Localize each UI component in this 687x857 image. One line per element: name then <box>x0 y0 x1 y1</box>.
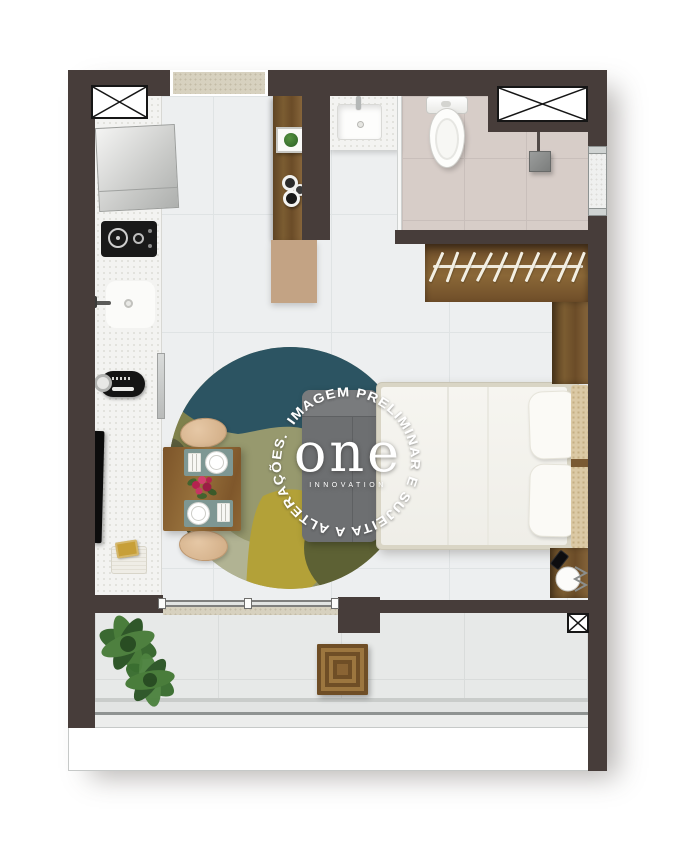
window-cap-bottom <box>589 208 606 215</box>
toilet-seat <box>435 118 459 160</box>
cooktop-knob-2 <box>148 244 152 248</box>
microwave-cap <box>94 374 112 392</box>
bathroom-faucet <box>356 96 361 109</box>
hanger-icon <box>429 252 445 282</box>
burner-small <box>133 233 144 244</box>
watermark-logo: one INNOVATION <box>284 426 412 489</box>
balcony-outer-ledge <box>68 727 607 771</box>
logo-one: one <box>284 426 412 480</box>
glass-partition <box>397 96 402 230</box>
headboard-divider <box>571 459 589 467</box>
fridge-door-seam <box>99 187 177 192</box>
folded-towel <box>115 539 139 558</box>
wire-side-table <box>553 562 589 596</box>
napkin-bottom <box>217 503 230 522</box>
hanger-icon <box>557 252 573 282</box>
plate-top <box>205 451 228 474</box>
hanger-icon <box>571 252 586 283</box>
wall-balcony-stub <box>338 597 380 633</box>
hangers <box>433 252 583 286</box>
wardrobe <box>425 244 588 302</box>
island-plant <box>284 133 298 147</box>
table-flowers <box>186 472 218 502</box>
counter-rail <box>157 353 165 419</box>
kitchen-sink <box>106 281 155 328</box>
wood-ottoman <box>317 644 368 695</box>
hanger-icon <box>525 252 541 282</box>
bowl-3 <box>283 190 300 207</box>
entry-threshold <box>170 70 268 96</box>
wall-island-stub <box>302 96 330 240</box>
wall-bedroom-bottom <box>380 600 588 613</box>
railing-band-3 <box>95 715 588 727</box>
refrigerator <box>95 124 179 212</box>
shaft-x-box-top-left <box>91 85 148 119</box>
toilet-flush-button <box>441 101 451 107</box>
basin-drain <box>357 121 364 128</box>
balcony-plants <box>86 606 190 716</box>
wall-bathroom-bottom <box>395 230 607 244</box>
duvet-crease-2 <box>487 387 489 545</box>
bathroom-basin <box>337 104 382 140</box>
hanger-icon <box>446 251 460 282</box>
hanger-icon <box>461 252 477 282</box>
sink-drain <box>124 299 133 308</box>
cooktop-knob-1 <box>148 229 152 233</box>
bathroom-window <box>588 146 607 216</box>
microwave-controls <box>112 377 132 380</box>
shower-pipe <box>537 130 540 153</box>
door-handle-2 <box>244 598 252 609</box>
floorplan: IMAGEM PRELIMINAR E SUJEITA A ALTERAÇÕES… <box>0 0 687 857</box>
toilet <box>424 94 470 174</box>
wardrobe-column <box>552 302 588 384</box>
hanger-icon <box>493 252 509 282</box>
plate-bottom <box>187 502 210 525</box>
shower-drain <box>529 151 551 172</box>
hanger-icon <box>476 252 493 282</box>
microwave-handle <box>112 387 134 391</box>
window-cap-top <box>589 147 606 154</box>
hanger-icon <box>540 252 557 282</box>
napkin-top <box>188 453 201 472</box>
shaft-x-box-top-right <box>497 86 588 122</box>
burner-large-center <box>116 236 120 240</box>
kitchen-island <box>273 96 302 240</box>
door-handle-3 <box>331 598 339 609</box>
hanger-icon <box>509 252 523 283</box>
shaft-x-box-balcony <box>567 613 589 633</box>
island-base-tan <box>271 240 317 303</box>
cooktop <box>101 221 157 257</box>
